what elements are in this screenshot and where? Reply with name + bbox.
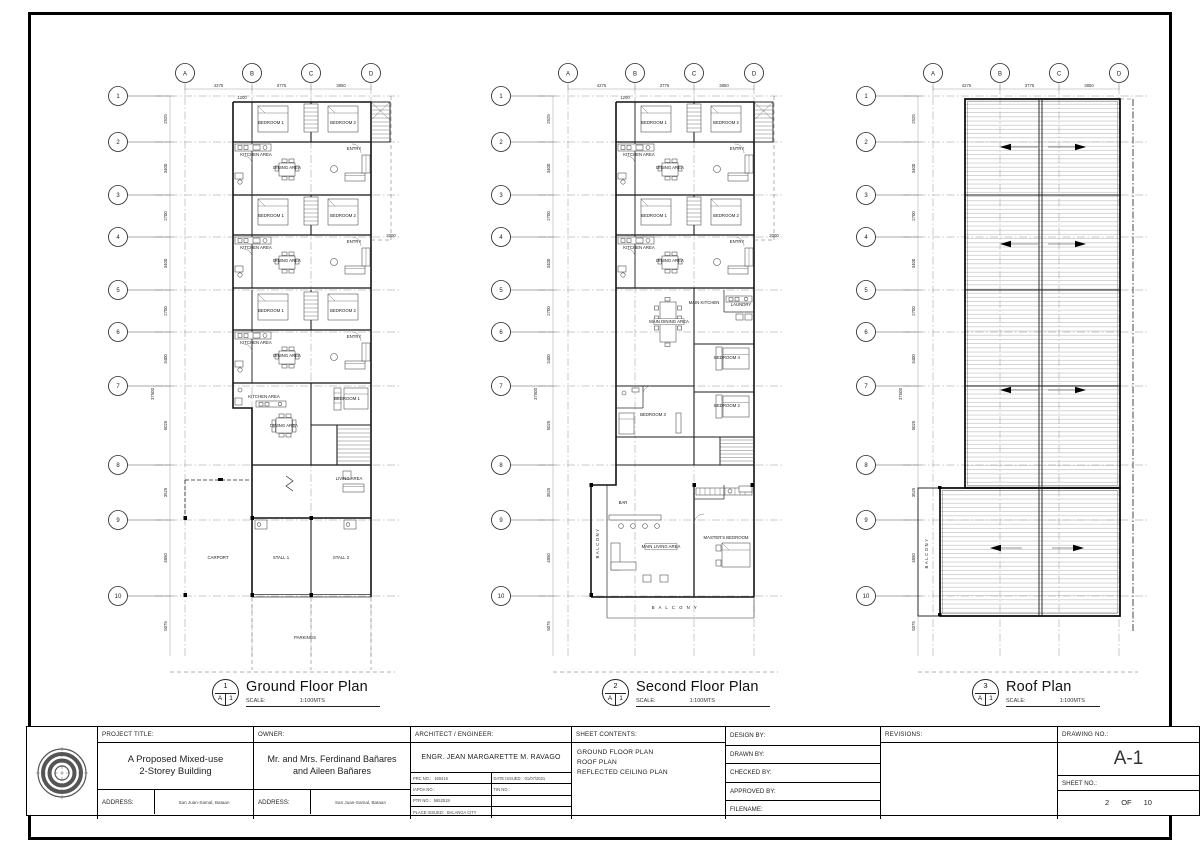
project-address-label: ADDRESS:: [98, 790, 155, 814]
dimension-label: 3400: [546, 163, 551, 173]
company-logo-icon: [34, 745, 90, 801]
owner-address-label: ADDRESS:: [254, 790, 311, 814]
room-label: ENTRY: [347, 239, 362, 244]
room-label: BEDROOM 1: [641, 120, 667, 125]
room-label: DINING AREA: [270, 423, 298, 428]
dimension-label: 5025: [911, 420, 916, 430]
dimension-label: 3525: [911, 487, 916, 497]
room-label: DINING AREA: [273, 353, 301, 358]
architect-label: ARCHITECT / ENGINEER:: [411, 727, 571, 743]
dimension-label: 2925: [911, 114, 916, 124]
dimension-label: 3400: [163, 258, 168, 268]
dimension-label: 3775: [277, 83, 287, 88]
plan-title-text: Second Floor Plan: [636, 679, 766, 695]
dimension-label: 3400: [911, 354, 916, 364]
prc-no: 160416: [434, 776, 448, 781]
place-issued: BALANGA CITY: [447, 810, 477, 815]
dimension-label: 2700: [163, 211, 168, 221]
grid-bubble-col-label: D: [752, 72, 757, 78]
room-label: BEDROOM 2: [330, 308, 356, 313]
dimension-label: 2925: [163, 114, 168, 124]
approved-by-label: APPROVED BY:: [726, 783, 880, 802]
room-label: BEDROOM 1: [258, 308, 284, 313]
dimension-label: 3525: [546, 487, 551, 497]
room-label: BEDROOM 2: [330, 120, 356, 125]
owner-cell: OWNER: Mr. and Mrs. Ferdinand Bañares an…: [253, 727, 410, 819]
room-label: KITCHEN AREA: [248, 394, 280, 399]
grid-bubble-row-label: 10: [115, 594, 122, 600]
room-label: DINING AREA: [273, 258, 301, 263]
owner-address-value: San Juan-Samal, Bataan: [311, 790, 410, 814]
grid-bubble-col-label: C: [309, 72, 314, 78]
room-label: STALL 1: [273, 555, 290, 560]
dimension-label: 1200: [620, 95, 630, 100]
overall-dimension-label: 37500: [898, 387, 903, 400]
room-label: DINING AREA: [273, 165, 301, 170]
ground-floor-geometry: [170, 96, 395, 672]
room-label: BEDROOM 1: [258, 120, 284, 125]
room-label: BEDROOM 2: [714, 403, 740, 408]
dimension-label: 2700: [546, 211, 551, 221]
dimension-label: 3775: [1025, 83, 1035, 88]
room-label: STALL 2: [333, 555, 350, 560]
plan-number: 2: [603, 681, 628, 690]
room-label: MASTER'S BEDROOM: [704, 535, 749, 540]
signatures-cell: DESIGN BY: DRAWN BY: CHECKED BY: APPROVE…: [725, 727, 880, 819]
room-label: KITCHEN AREA: [240, 152, 272, 157]
dimension-label: 4850: [163, 553, 168, 563]
grid-bubble-col-label: C: [692, 72, 697, 78]
grid-bubble-col-label: B: [633, 72, 637, 78]
plan-title-ground-floor: 1 A1 Ground Floor Plan SCALE:1:100MTS: [212, 679, 380, 707]
room-labels: BEDROOM 1BEDROOM 2KITCHEN AREADINING ARE…: [208, 120, 363, 640]
room-label: LAUNDRY: [731, 302, 752, 307]
grid-bubble-col-label: B: [250, 72, 254, 78]
room-label: BALCONY: [924, 537, 929, 568]
dimension-label: 5025: [163, 420, 168, 430]
plan-title-text: Roof Plan: [1006, 679, 1096, 695]
filename-label: FILENAME:: [726, 801, 880, 819]
roof-geometry: [918, 99, 1138, 672]
dimension-label: 3525: [163, 487, 168, 497]
sheet-no-label: SHEET NO.:: [1058, 776, 1199, 791]
dimension-label: 2700: [911, 211, 916, 221]
dimension-label: 3400: [163, 163, 168, 173]
project-title-value: A Proposed Mixed-use 2-Storey Building: [98, 743, 253, 790]
ground-floor-plan-drawing: ABCD123456789104275377538502925340027003…: [100, 56, 440, 696]
room-label: BEDROOM 2: [713, 213, 739, 218]
dimension-label: 5025: [546, 420, 551, 430]
room-label: DINING AREA: [656, 165, 684, 170]
dimension-label: 3775: [660, 83, 670, 88]
dimension-label: 2700: [911, 306, 916, 316]
drawing-no-value: A-1: [1058, 743, 1199, 776]
sheet-contents-label: SHEET CONTENTS:: [572, 727, 725, 743]
grid-bubble-col-label: A: [183, 72, 187, 78]
dimension-label: 2000: [769, 233, 779, 238]
dimension-label: 3400: [911, 163, 916, 173]
dimension-label: 4275: [597, 83, 607, 88]
owner-value: Mr. and Mrs. Ferdinand Bañares and Ailee…: [254, 743, 410, 790]
title-block: PROJECT TITLE: A Proposed Mixed-use 2-St…: [26, 726, 1200, 816]
overall-dimension-label: 37500: [150, 387, 155, 400]
dimension-label: 3400: [163, 354, 168, 364]
project-title-label: PROJECT TITLE:: [98, 727, 253, 743]
room-label: BEDROOM 1: [641, 213, 667, 218]
room-label: ENTRY: [730, 146, 745, 151]
room-label: LIVING AREA: [336, 476, 363, 481]
drawing-sheet: ABCD123456789104275377538502925340027003…: [0, 0, 1200, 848]
room-label: ENTRY: [730, 239, 745, 244]
dimension-label: 4275: [962, 83, 972, 88]
date-issued: 01/07/2021: [525, 776, 546, 781]
checked-by-label: CHECKED BY:: [726, 764, 880, 783]
room-labels: BALCONY: [924, 537, 929, 568]
owner-label: OWNER:: [254, 727, 410, 743]
room-label: KITCHEN AREA: [623, 245, 655, 250]
overall-dimension-label: 37500: [533, 387, 538, 400]
grid-bubble-col-label: B: [998, 72, 1002, 78]
dimension-label: 2700: [546, 306, 551, 316]
ptr-no: 5652519: [434, 798, 450, 803]
room-label: BEDROOM 2: [713, 120, 739, 125]
revisions-cell: REVISIONS:: [880, 727, 1057, 819]
room-label: KITCHEN AREA: [240, 245, 272, 250]
room-label: BEDROOM 3: [640, 412, 666, 417]
dimension-label: 3400: [546, 258, 551, 268]
room-label: BEDROOM 1: [334, 396, 360, 401]
dimension-label: 3850: [719, 83, 729, 88]
plan-number: 3: [973, 681, 998, 690]
architect-cell: ARCHITECT / ENGINEER: ENGR. JEAN MARGARE…: [410, 727, 571, 819]
project-title-cell: PROJECT TITLE: A Proposed Mixed-use 2-St…: [97, 727, 253, 819]
dimension-label: 2700: [163, 306, 168, 316]
sheet-no-value: 2OF10: [1058, 791, 1199, 813]
dimension-label: 5075: [546, 621, 551, 631]
dimension-label: 1200: [237, 95, 247, 100]
dimension-label: 3400: [546, 354, 551, 364]
dimension-label: 4850: [911, 553, 916, 563]
dimension-label: 3400: [911, 258, 916, 268]
plan-title-text: Ground Floor Plan: [246, 679, 376, 695]
grid-bubble-col-label: C: [1057, 72, 1062, 78]
room-label: BALCONY: [595, 527, 600, 558]
grid-bubble-col-label: D: [369, 72, 374, 78]
detail-reference-symbol: 3 A1: [972, 679, 999, 706]
room-label: ENTRY: [347, 146, 362, 151]
room-label: B A L C O N Y: [652, 605, 699, 610]
room-label: BEDROOM 4: [714, 355, 740, 360]
grid-bubble-col-label: A: [931, 72, 935, 78]
detail-reference-symbol: 1 A1: [212, 679, 239, 706]
logo-cell: [27, 727, 97, 819]
drawn-by-label: DRAWN BY:: [726, 746, 880, 765]
grid-bubble-col-label: A: [566, 72, 570, 78]
room-label: MAIN DINING AREA: [649, 319, 689, 324]
room-label: ENTRY: [347, 334, 362, 339]
dimension-label: 4850: [546, 553, 551, 563]
dimension-label: 3850: [1084, 83, 1094, 88]
project-address-value: San Juan-Samal, Bataan: [155, 790, 253, 814]
sheet-contents-cell: SHEET CONTENTS: GROUND FLOOR PLAN ROOF P…: [571, 727, 725, 819]
dimension-label: 4275: [214, 83, 224, 88]
room-label: PARKINGS: [294, 635, 316, 640]
drawing-no-label: DRAWING NO.:: [1058, 727, 1199, 743]
second-floor-geometry: [553, 96, 778, 672]
dimension-label: 5075: [163, 621, 168, 631]
grid-bubble-row-label: 10: [863, 594, 870, 600]
dimension-label: 3850: [336, 83, 346, 88]
second-floor-plan-drawing: ABCD123456789104275377538502925340027003…: [483, 56, 823, 696]
roof-plan-drawing: ABCD123456789104275377538502925340027003…: [848, 56, 1188, 696]
room-label: MAIN KITCHEN: [689, 300, 720, 305]
detail-reference-symbol: 2 A1: [602, 679, 629, 706]
plan-number: 1: [213, 681, 238, 690]
room-label: KITCHEN AREA: [623, 152, 655, 157]
revisions-label: REVISIONS:: [881, 727, 1057, 743]
grid-bubble-col-label: D: [1117, 72, 1122, 78]
room-label: CARPORT: [208, 555, 229, 560]
room-label: BEDROOM 2: [330, 213, 356, 218]
grid-bubble-row-label: 10: [498, 594, 505, 600]
plan-title-roof: 3 A1 Roof Plan SCALE:1:100MTS: [972, 679, 1100, 707]
plan-title-second-floor: 2 A1 Second Floor Plan SCALE:1:100MTS: [602, 679, 770, 707]
room-label: DINING AREA: [656, 258, 684, 263]
architect-name: ENGR. JEAN MARGARETTE M. RAVAGO: [411, 743, 571, 773]
sheet-contents-list: GROUND FLOOR PLAN ROOF PLAN REFLECTED CE…: [572, 743, 725, 778]
room-label: BEDROOM 1: [258, 213, 284, 218]
room-label: KITCHEN AREA: [240, 340, 272, 345]
room-label: BAR: [619, 500, 628, 505]
dimension-label: 2000: [386, 233, 396, 238]
dimension-label: 2925: [546, 114, 551, 124]
drawing-no-cell: DRAWING NO.: A-1 SHEET NO.: 2OF10: [1057, 727, 1199, 819]
design-by-label: DESIGN BY:: [726, 727, 880, 746]
dimension-label: 5075: [911, 621, 916, 631]
room-label: MAIN LIVING AREA: [642, 544, 681, 549]
